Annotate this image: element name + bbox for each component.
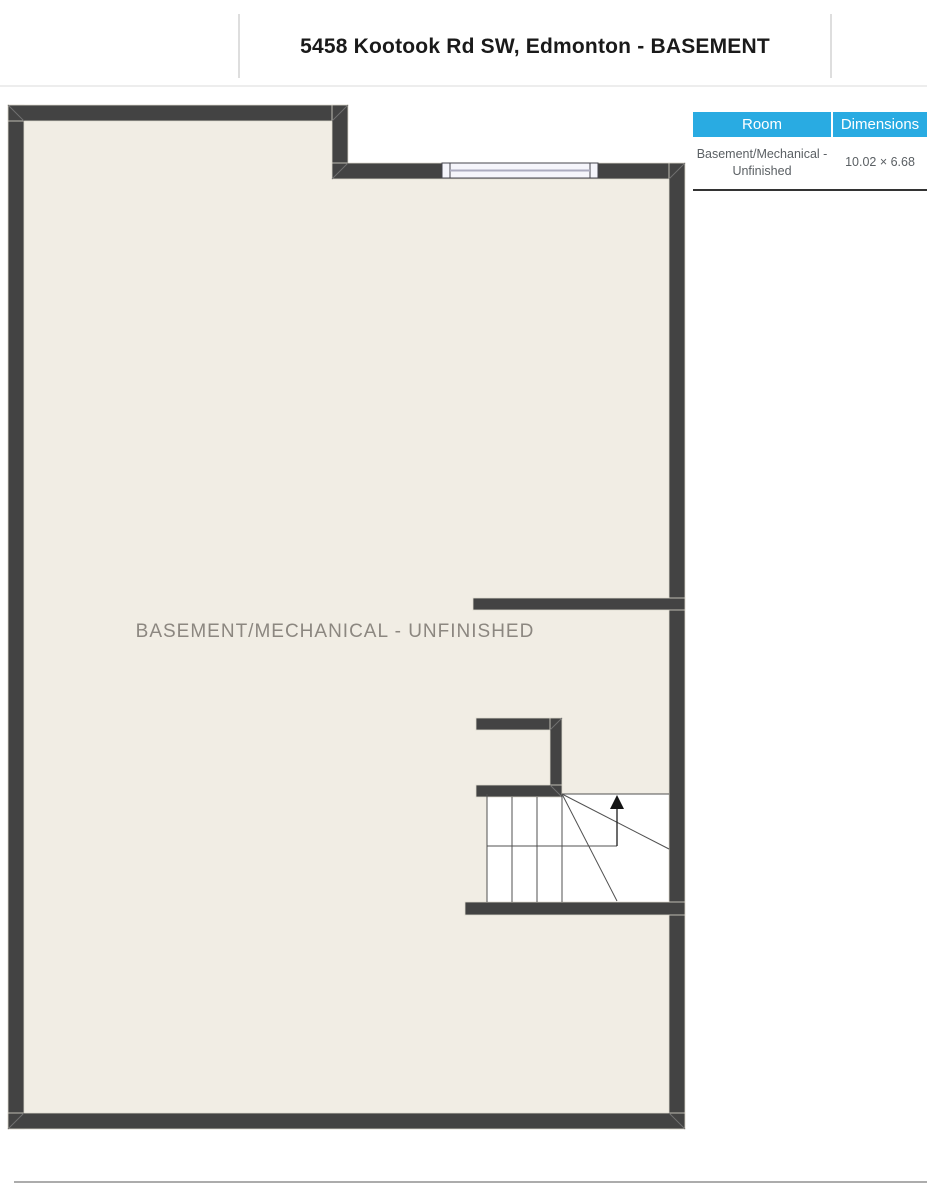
cell-room-name: Basement/Mechanical - Unfinished — [693, 146, 831, 180]
column-header-room: Room — [693, 112, 831, 137]
room-table: Room Dimensions Basement/Mechanical - Un… — [693, 112, 927, 191]
floor-area — [8, 105, 685, 1129]
wall-stair-lower-stub — [476, 785, 562, 797]
wall-bottom — [8, 1113, 685, 1129]
floorplan-page: 5458 Kootook Rd SW, Edmonton - BASEMENT — [0, 0, 927, 1200]
table-row: Basement/Mechanical - Unfinished 10.02 ×… — [693, 137, 927, 191]
stairwell-area — [487, 794, 670, 902]
column-header-dimensions: Dimensions — [833, 112, 927, 137]
table-header-row: Room Dimensions — [693, 112, 927, 137]
footer-divider — [14, 1181, 927, 1183]
wall-stair-top-stub — [476, 718, 562, 730]
wall-left — [8, 105, 24, 1129]
wall-right — [669, 163, 685, 1129]
cell-room-dimensions: 10.02 × 6.68 — [833, 154, 927, 171]
wall-interior-mid — [473, 598, 685, 610]
wall-top-upper — [8, 105, 348, 121]
wall-stair-bottom — [465, 902, 685, 915]
room-label: BASEMENT/MECHANICAL - UNFINISHED — [130, 621, 540, 643]
